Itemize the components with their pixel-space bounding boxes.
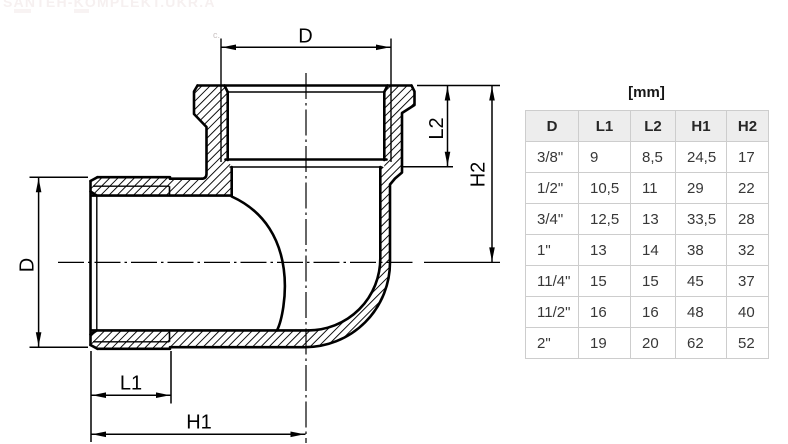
svg-text:D: D: [17, 258, 39, 272]
svg-text:H1: H1: [186, 412, 212, 434]
svg-text:H2: H2: [468, 162, 490, 188]
svg-text:c.: c.: [213, 30, 220, 40]
svg-text:L2: L2: [426, 117, 448, 139]
svg-text:L1: L1: [120, 373, 142, 395]
svg-text:D: D: [298, 25, 312, 47]
